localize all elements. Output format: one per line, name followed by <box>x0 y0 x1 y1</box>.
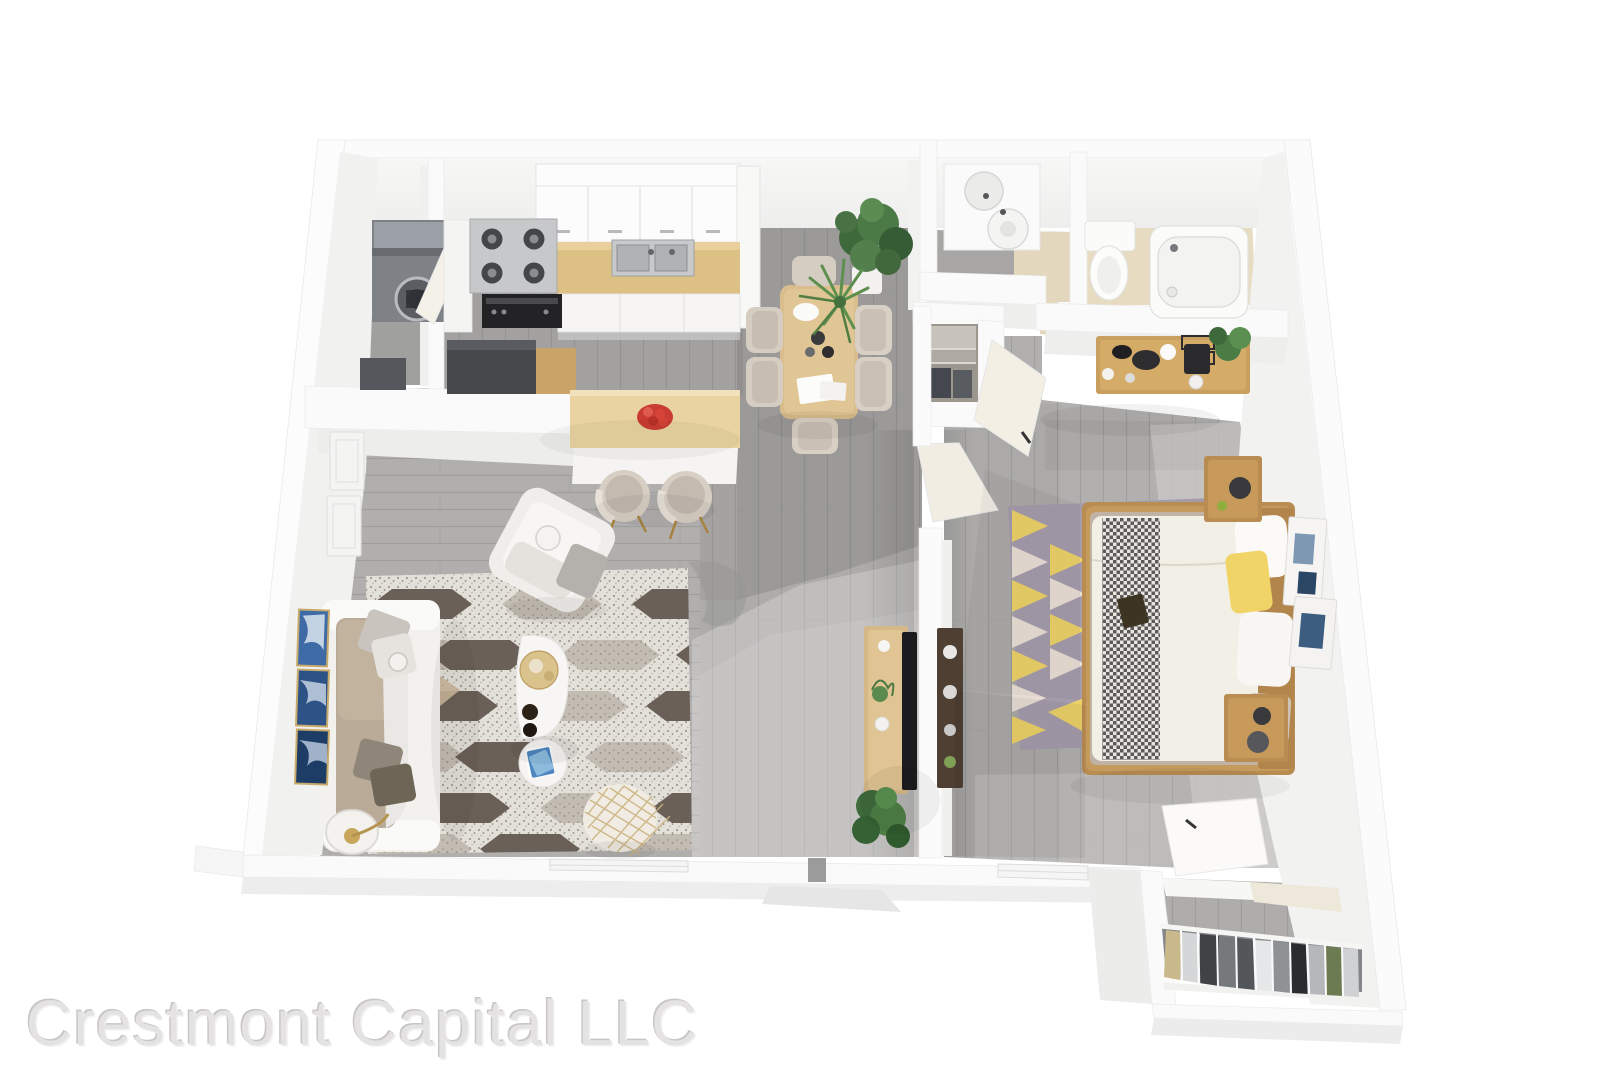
svg-text:Crestmont Capital LLC: Crestmont Capital LLC <box>26 987 699 1059</box>
